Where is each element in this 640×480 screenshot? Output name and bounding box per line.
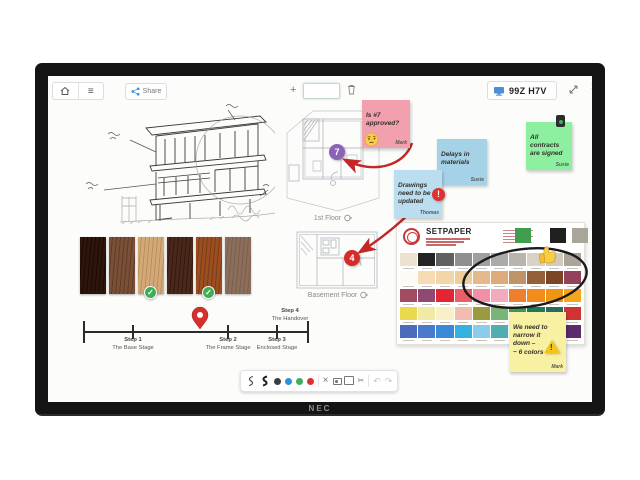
palette-swatch — [436, 307, 453, 320]
link-icon — [344, 214, 352, 222]
fullscreen-button[interactable] — [569, 85, 578, 94]
pen-tool-button[interactable] — [246, 375, 256, 387]
page: ≡ Share + — [0, 0, 640, 480]
note-author: Mark — [551, 364, 563, 370]
display-icon — [493, 86, 505, 96]
note-author: Thomas — [420, 210, 439, 216]
cut-button[interactable]: ✂ — [358, 377, 365, 385]
plan-marker-4[interactable]: 4 — [344, 250, 360, 266]
expand-icon — [569, 85, 578, 94]
wood-swatch[interactable] — [167, 237, 193, 294]
palette-swatch — [564, 271, 581, 284]
palette-swatch — [546, 271, 563, 284]
setpaper-logo-icon — [403, 228, 420, 245]
nec-logo: NEC — [35, 404, 605, 413]
approved-check-icon: ✓ — [144, 286, 157, 299]
wood-swatch[interactable] — [225, 237, 251, 294]
palette-swatch — [400, 253, 417, 266]
timeline-step-3: Step 3Enclosed Stage — [237, 337, 317, 353]
palette-swatch — [436, 289, 453, 302]
insert-image-button[interactable] — [333, 378, 342, 385]
pen-color-button[interactable] — [296, 378, 303, 385]
palette-swatch — [473, 325, 490, 338]
sticky-note-approval[interactable]: Is #7 approved? Mark — [362, 100, 410, 148]
plan-marker-7[interactable]: 7 — [329, 144, 345, 160]
palette-swatch — [400, 289, 417, 302]
note-text: All contracts are signed — [530, 134, 563, 157]
page-thumbnail-input[interactable] — [303, 83, 340, 99]
pen-color-button[interactable] — [285, 378, 292, 385]
pen-color-group — [274, 378, 314, 385]
link-icon — [360, 291, 368, 299]
wood-swatch[interactable]: ✓ — [138, 237, 164, 294]
palette-swatch — [400, 271, 417, 284]
pin-clip-icon — [556, 115, 565, 127]
sticky-note-contracts[interactable]: All contracts are signed Susie — [526, 122, 572, 170]
palette-swatch — [564, 253, 581, 266]
menu-button[interactable]: ≡ — [78, 83, 104, 99]
palette-swatch — [527, 271, 544, 284]
palette-swatch — [436, 325, 453, 338]
palette-swatch — [455, 253, 472, 266]
palette-swatch — [436, 253, 453, 266]
palette-swatch — [564, 289, 581, 302]
palette-swatch — [473, 289, 490, 302]
home-button[interactable] — [53, 83, 78, 99]
palette-swatch — [400, 307, 417, 320]
house-sketch-drawing[interactable] — [60, 100, 275, 235]
palette-swatch — [455, 325, 472, 338]
palette-swatch — [418, 271, 435, 284]
palette-swatch — [509, 289, 526, 302]
timeline-step-4: Step 4The Handover — [250, 308, 330, 324]
delete-page-button[interactable] — [347, 84, 356, 95]
palette-swatch — [473, 271, 490, 284]
first-floor-label: 1st Floor — [288, 214, 378, 222]
palette-swatch — [455, 271, 472, 284]
close-button[interactable]: × — [588, 81, 592, 93]
palette-swatch — [455, 307, 472, 320]
note-author: Mark — [395, 140, 407, 146]
add-page-button[interactable]: + — [290, 84, 296, 96]
share-icon — [131, 87, 140, 96]
palette-swatch — [564, 307, 581, 320]
palette-swatch — [564, 325, 581, 338]
palette-swatch — [527, 289, 544, 302]
redo-button[interactable]: ↷ — [385, 377, 393, 386]
palette-swatch — [491, 253, 508, 266]
session-code: 99Z H7V — [509, 86, 547, 96]
duplicate-button[interactable] — [346, 378, 354, 385]
palette-swatch — [473, 253, 490, 266]
note-text: Drawings need to be updated — [398, 182, 431, 205]
share-button[interactable]: Share — [125, 83, 167, 100]
palette-swatch — [418, 253, 435, 266]
palette-swatch — [455, 289, 472, 302]
palette-swatch — [418, 289, 435, 302]
palette-swatch — [418, 307, 435, 320]
palette-swatch — [509, 253, 526, 266]
pen-color-button[interactable] — [307, 378, 314, 385]
home-icon — [60, 86, 70, 96]
palette-header-swatch — [550, 228, 566, 243]
wood-swatch[interactable]: ✓ — [196, 237, 222, 294]
share-label: Share — [143, 88, 162, 95]
palette-swatch — [509, 271, 526, 284]
warning-triangle-icon: ! — [544, 340, 560, 353]
palette-swatch — [418, 325, 435, 338]
undo-button[interactable]: ↶ — [373, 377, 381, 386]
basement-plan-drawing[interactable] — [293, 228, 381, 292]
palette-swatch — [400, 325, 417, 338]
palette-swatch — [436, 271, 453, 284]
palette-swatch — [491, 271, 508, 284]
marker-tool-button[interactable] — [260, 375, 270, 387]
basement-floor-label: Basement Floor — [293, 291, 383, 299]
toolbar-divider — [318, 375, 319, 387]
toolbar-divider — [368, 375, 369, 387]
exclamation-badge-icon: ! — [432, 188, 445, 201]
palette-swatch — [546, 289, 563, 302]
wood-swatch[interactable] — [80, 237, 106, 294]
pen-color-button[interactable] — [274, 378, 281, 385]
location-pin-icon — [192, 307, 208, 329]
menu-icon: ≡ — [88, 86, 94, 97]
approved-check-icon: ✓ — [202, 286, 215, 299]
palette-swatch — [473, 307, 490, 320]
nav-button-group: ≡ — [52, 82, 104, 100]
palette-header-swatch — [572, 228, 588, 243]
clear-button[interactable]: × — [323, 376, 329, 386]
wood-swatch-row: ✓✓ — [80, 237, 251, 294]
wood-swatch[interactable] — [109, 237, 135, 294]
trash-icon — [347, 84, 356, 95]
note-text: Is #7 approved? — [366, 112, 399, 127]
timeline-step-1: Step 1The Base Stage — [93, 337, 173, 353]
note-author: Susie — [471, 177, 484, 183]
note-text: Delays in materials — [441, 151, 470, 166]
palette-brand: SETPAPER — [426, 227, 472, 236]
note-text: We need to narrow it down – ~ 6 colors — [513, 324, 548, 355]
sticky-note-delays[interactable]: Delays in materials Susie — [437, 139, 487, 185]
palette-swatch — [491, 325, 508, 338]
drawing-toolbar: × ✂ ↶ ↷ — [240, 370, 398, 392]
session-code-badge[interactable]: 99Z H7V — [487, 81, 557, 100]
palette-swatch — [491, 289, 508, 302]
nec-monitor-bezel: ≡ Share + — [35, 63, 605, 416]
palette-swatch — [491, 307, 508, 320]
note-author: Susie — [556, 162, 569, 168]
palette-header-swatch — [515, 228, 531, 243]
thinking-emoji-icon — [364, 132, 379, 147]
whiteboard-canvas[interactable]: ≡ Share + — [48, 76, 592, 402]
thumbs-up-sticker[interactable] — [537, 243, 560, 266]
